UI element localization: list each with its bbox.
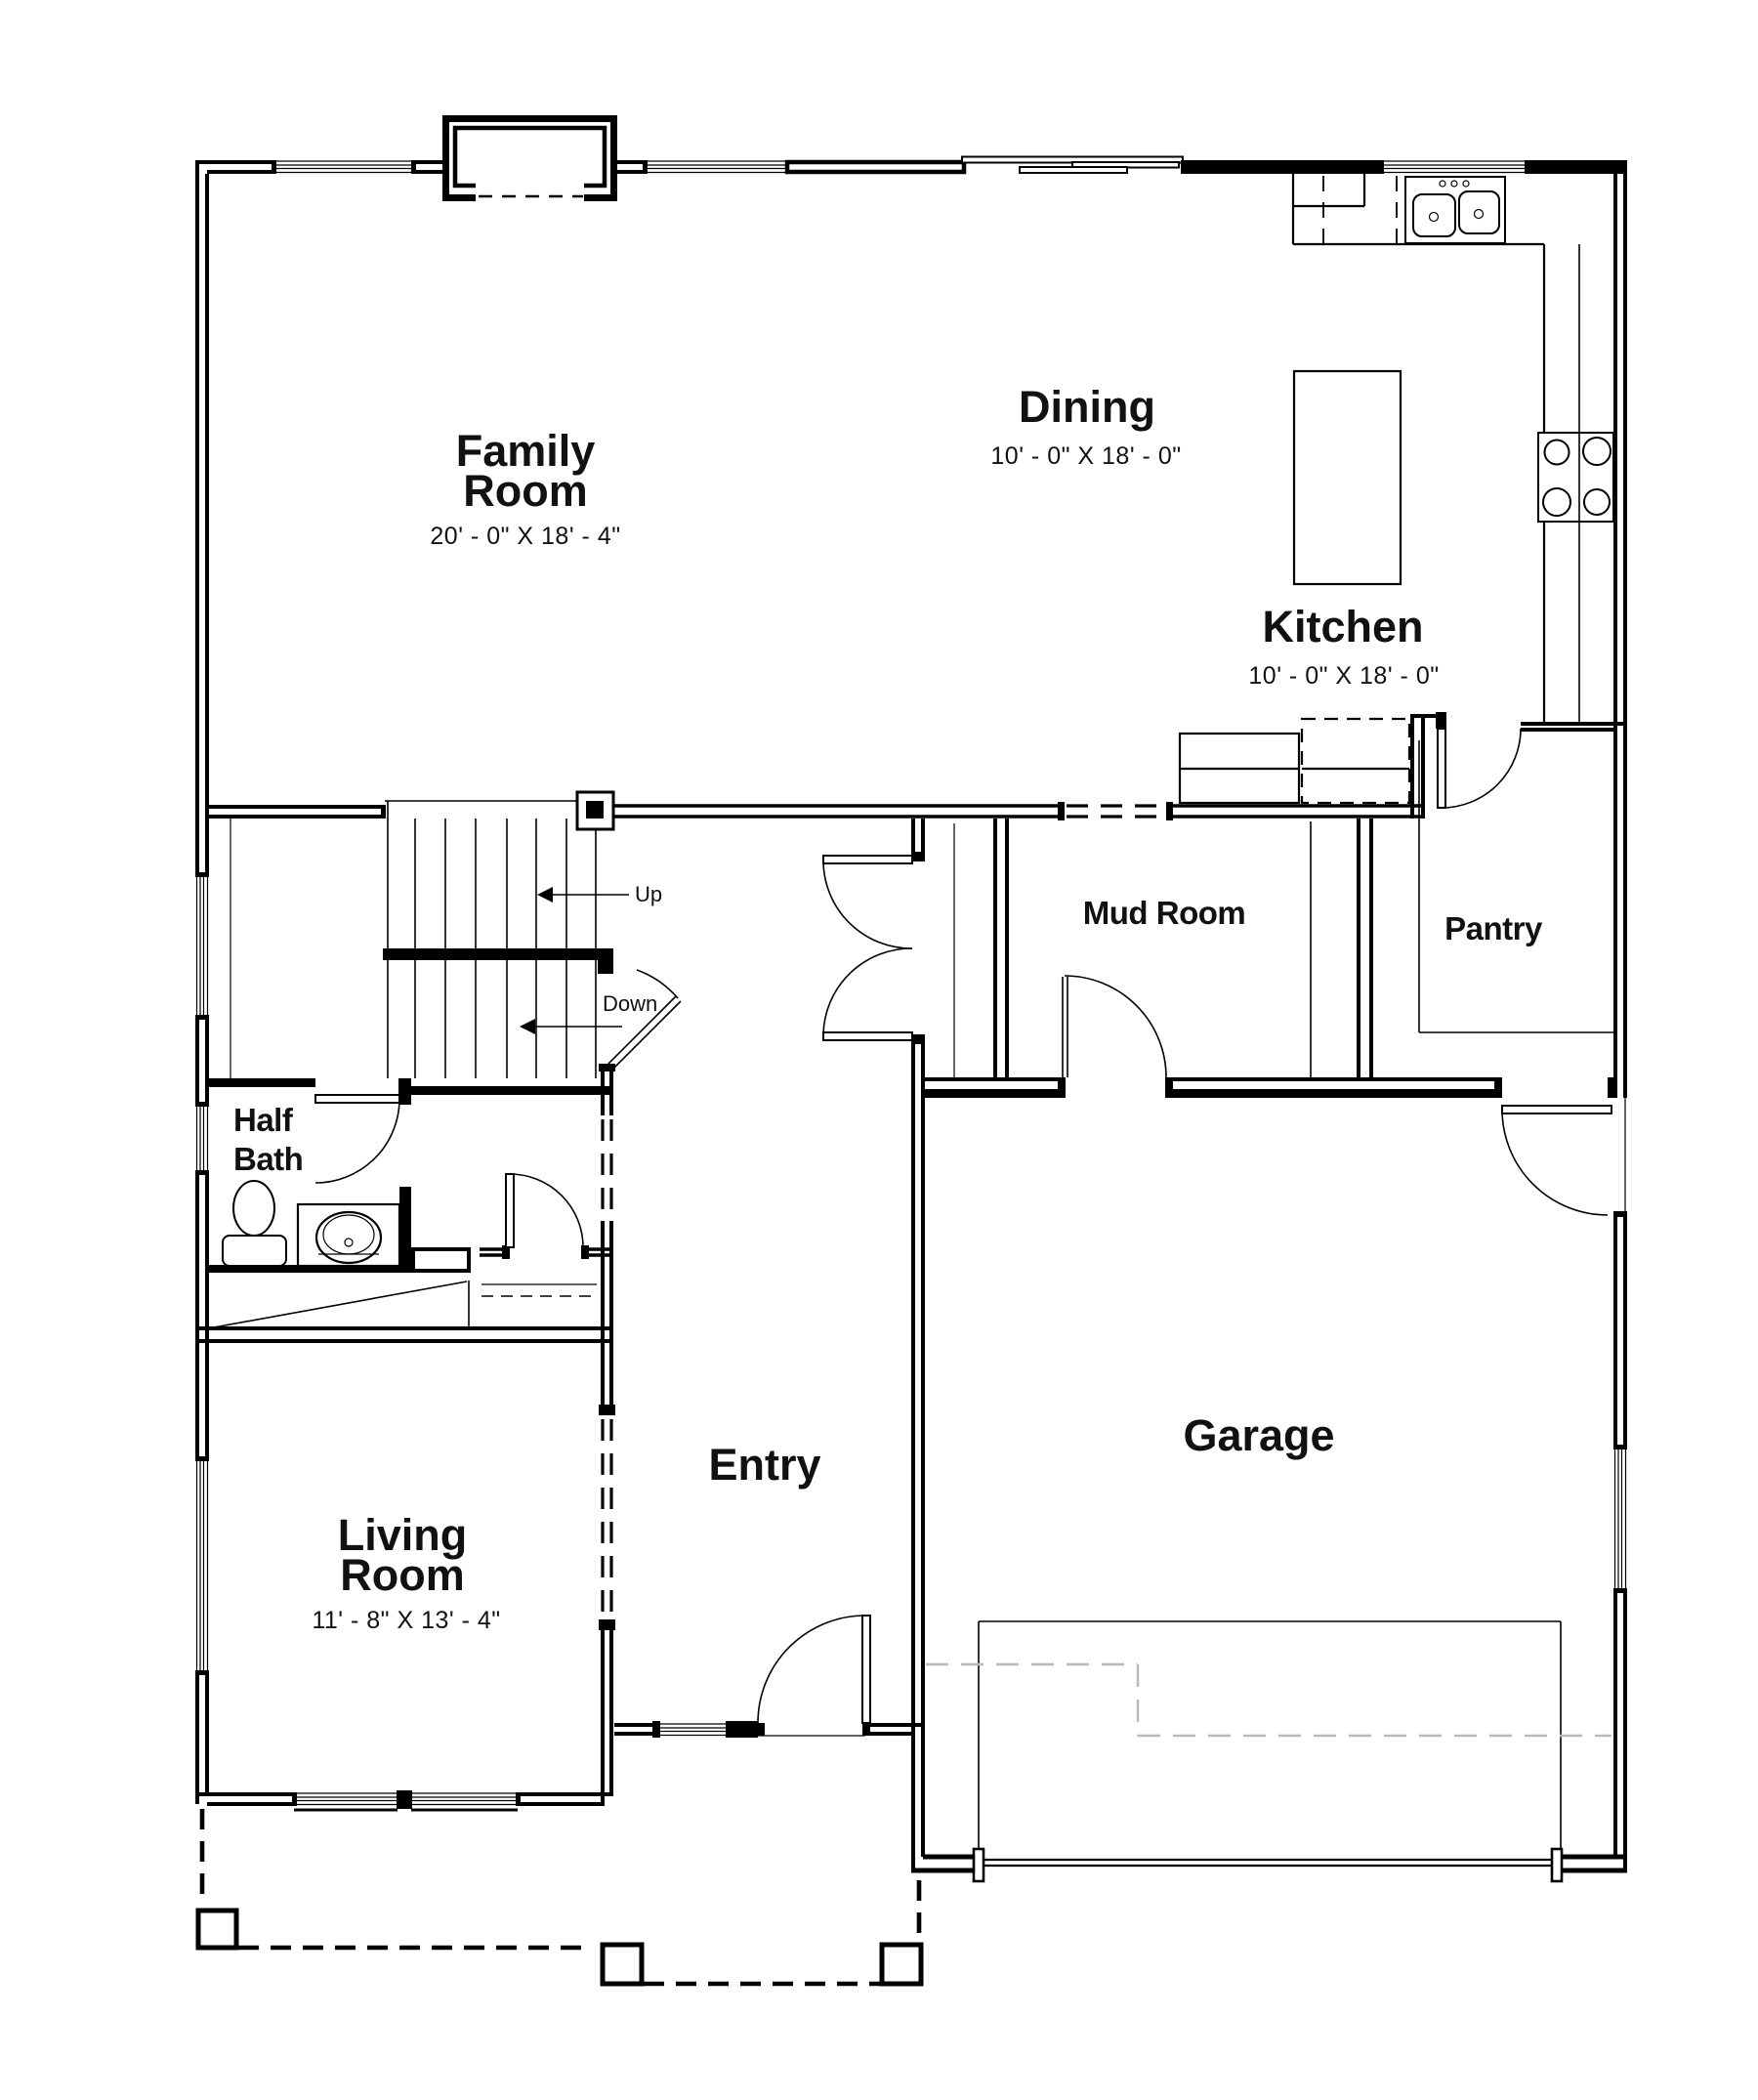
svg-text:Down: Down [603,991,657,1016]
svg-text:Garage: Garage [1183,1410,1334,1460]
svg-text:20' - 0" X 18' - 4": 20' - 0" X 18' - 4" [430,523,620,550]
svg-text:10' - 0" X 18' - 0": 10' - 0" X 18' - 0" [1248,662,1439,690]
svg-text:11' - 8" X 13' - 4": 11' - 8" X 13' - 4" [312,1607,500,1634]
svg-text:Mud Room: Mud Room [1083,895,1245,931]
svg-text:Half: Half [233,1102,294,1138]
svg-text:Bath: Bath [233,1141,303,1177]
svg-text:Room: Room [340,1550,465,1600]
svg-text:Up: Up [635,882,662,906]
svg-text:10' - 0" X 18' - 0": 10' - 0" X 18' - 0" [990,442,1181,470]
svg-text:Room: Room [463,466,588,516]
svg-text:Pantry: Pantry [1444,910,1543,946]
svg-text:Kitchen: Kitchen [1262,602,1423,651]
svg-text:Entry: Entry [708,1440,820,1490]
svg-text:Dining: Dining [1019,382,1155,432]
